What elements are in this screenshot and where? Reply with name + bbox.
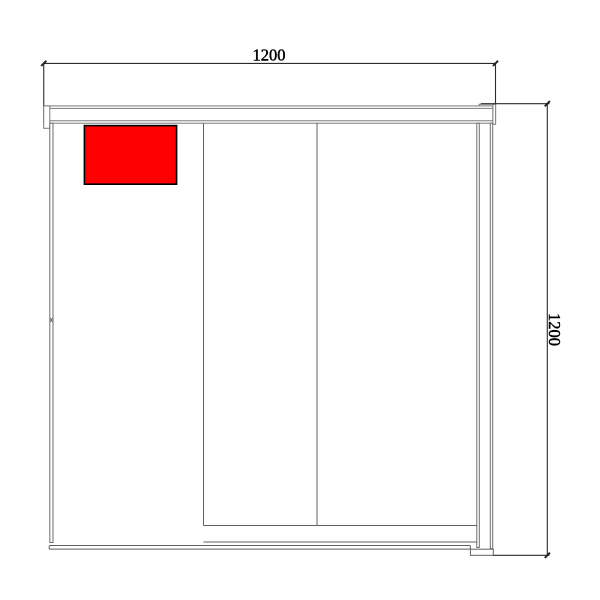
svg-text:1200: 1200 — [253, 46, 286, 65]
svg-text:1200: 1200 — [545, 313, 564, 346]
